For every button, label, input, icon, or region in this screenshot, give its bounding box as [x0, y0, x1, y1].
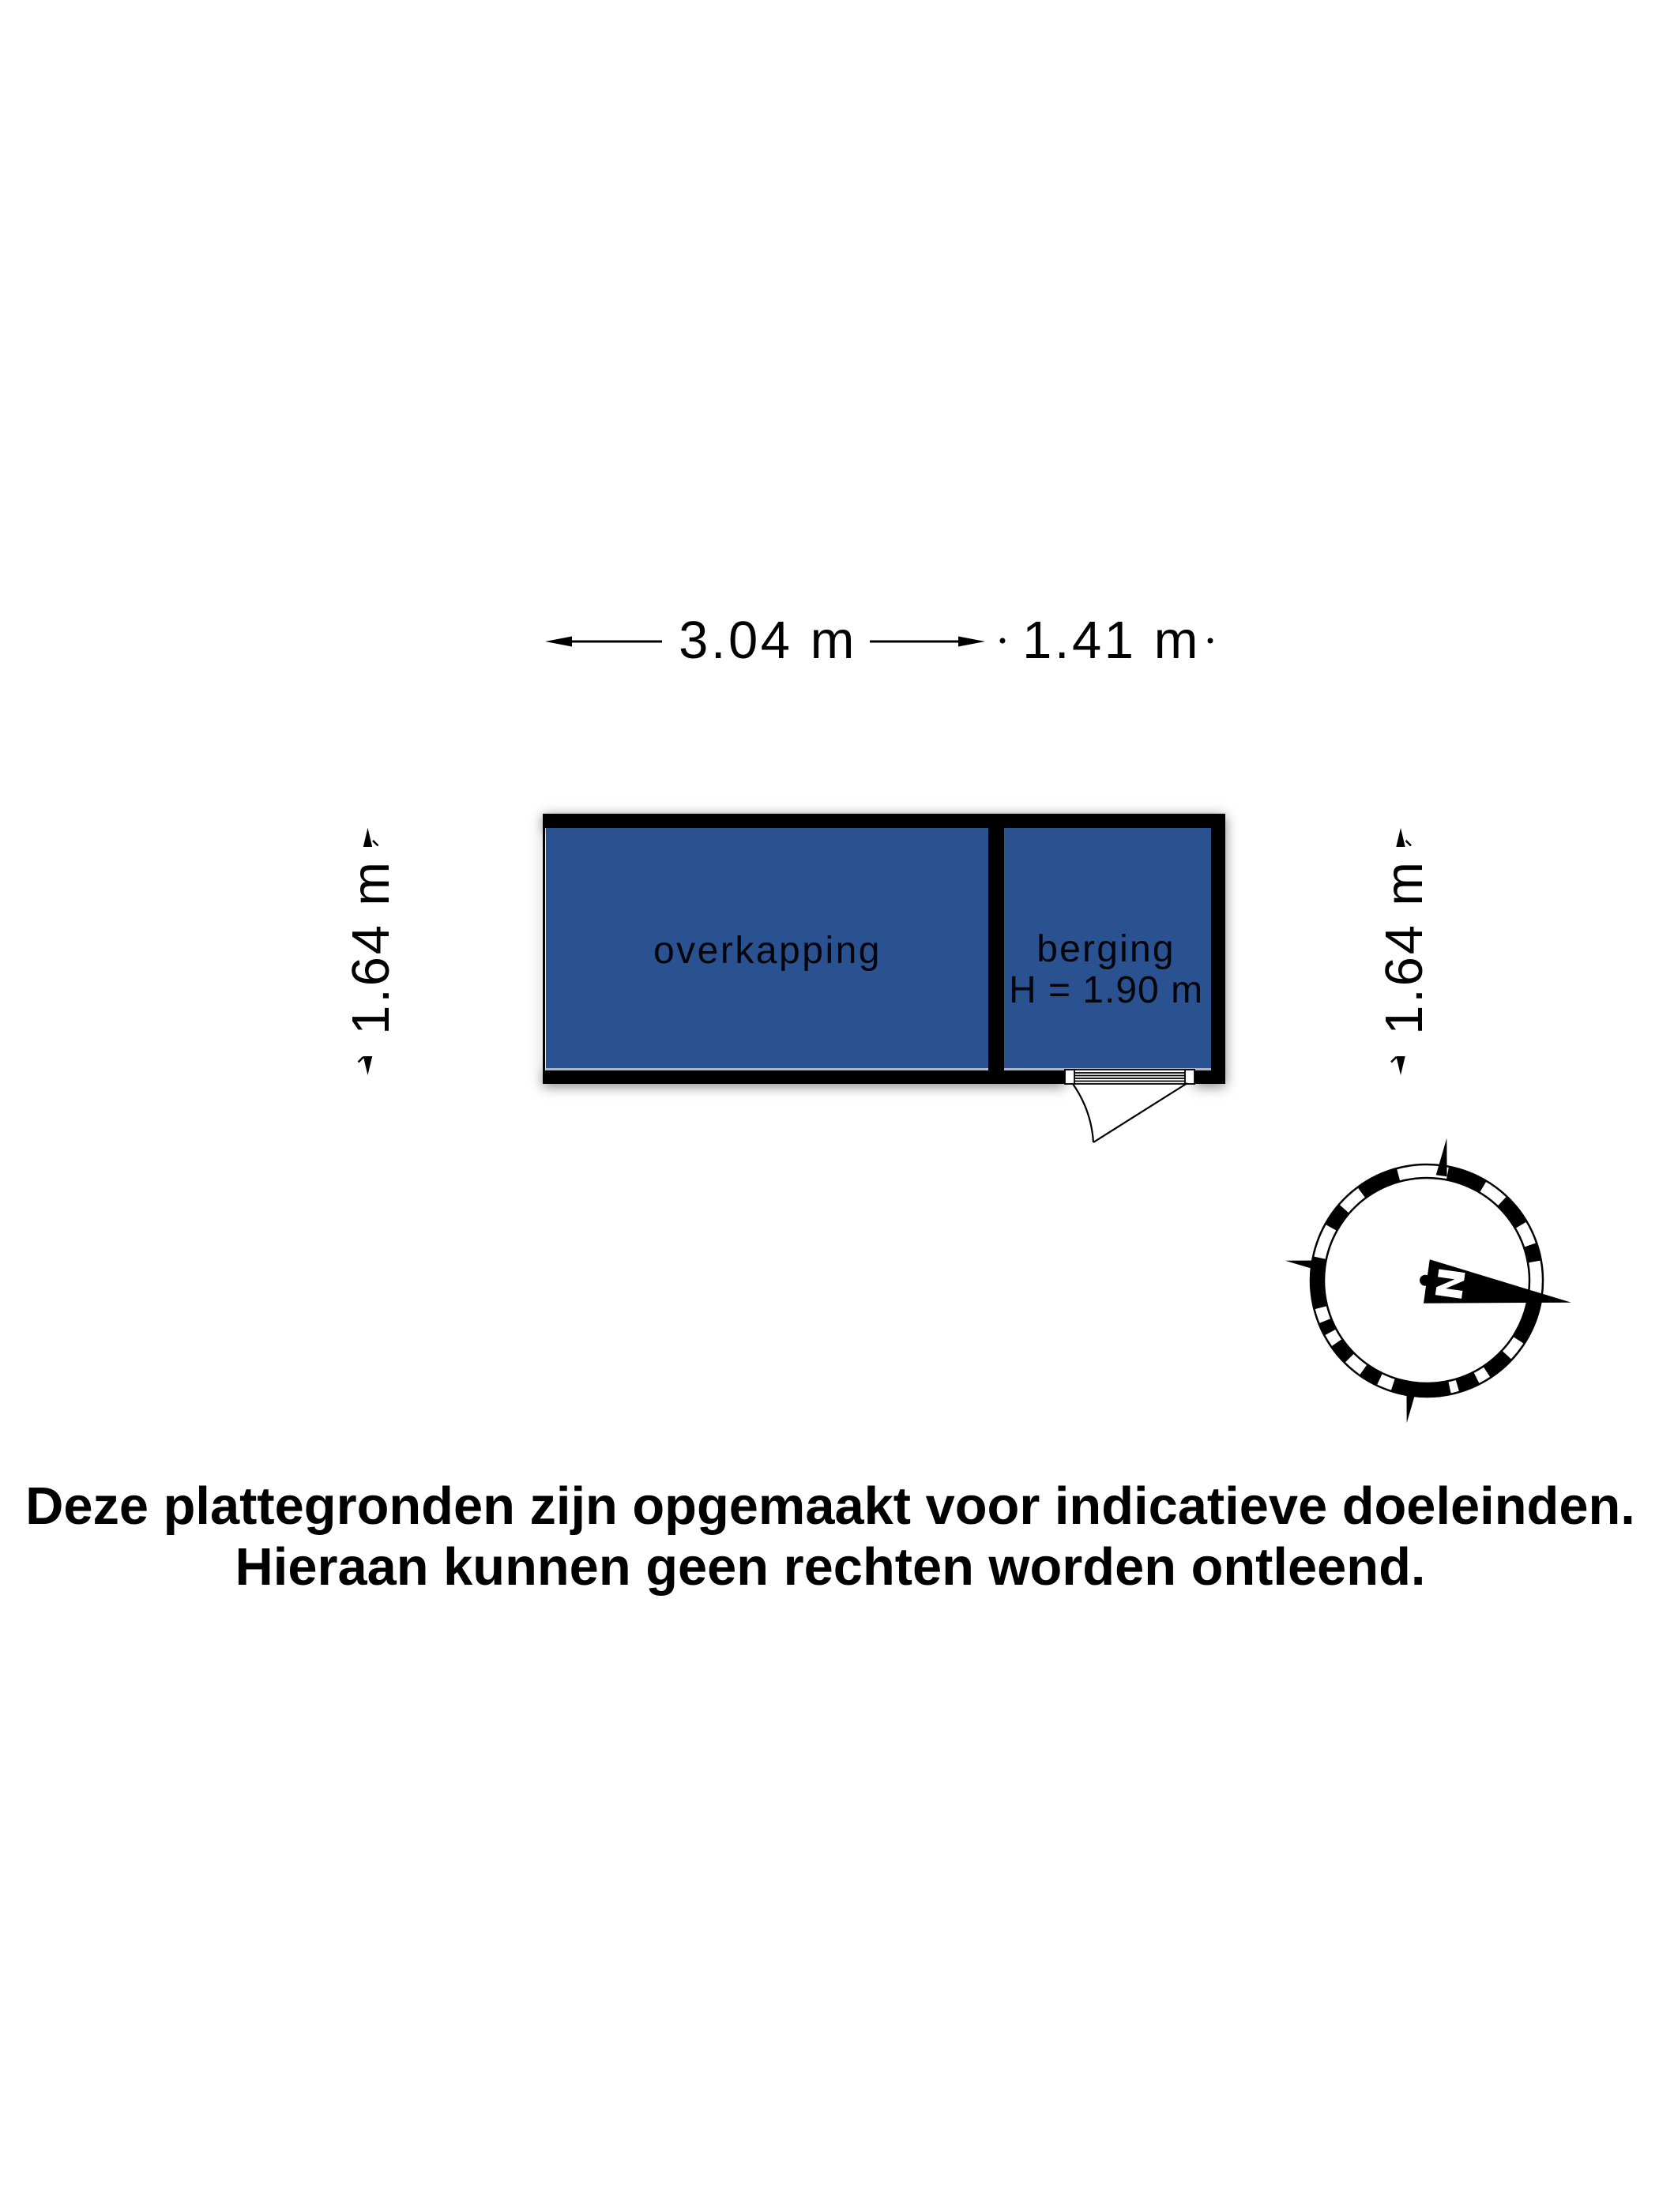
svg-text:overkapping: overkapping: [653, 930, 882, 972]
svg-text:Deze plattegronden zijn opgema: Deze plattegronden zijn opgemaakt voor i…: [25, 1477, 1635, 1536]
svg-text:1.64 m: 1.64 m: [1375, 860, 1434, 1035]
svg-text:Hieraan kunnen geen rechten wo: Hieraan kunnen geen rechten worden ontle…: [235, 1538, 1426, 1597]
svg-text:1.41 m: 1.41 m: [1022, 611, 1201, 670]
svg-text:3.04 m: 3.04 m: [679, 611, 857, 670]
svg-text:1.64 m: 1.64 m: [341, 860, 401, 1035]
svg-text:H = 1.90 m: H = 1.90 m: [1009, 969, 1203, 1011]
svg-text:berging: berging: [1036, 928, 1176, 970]
